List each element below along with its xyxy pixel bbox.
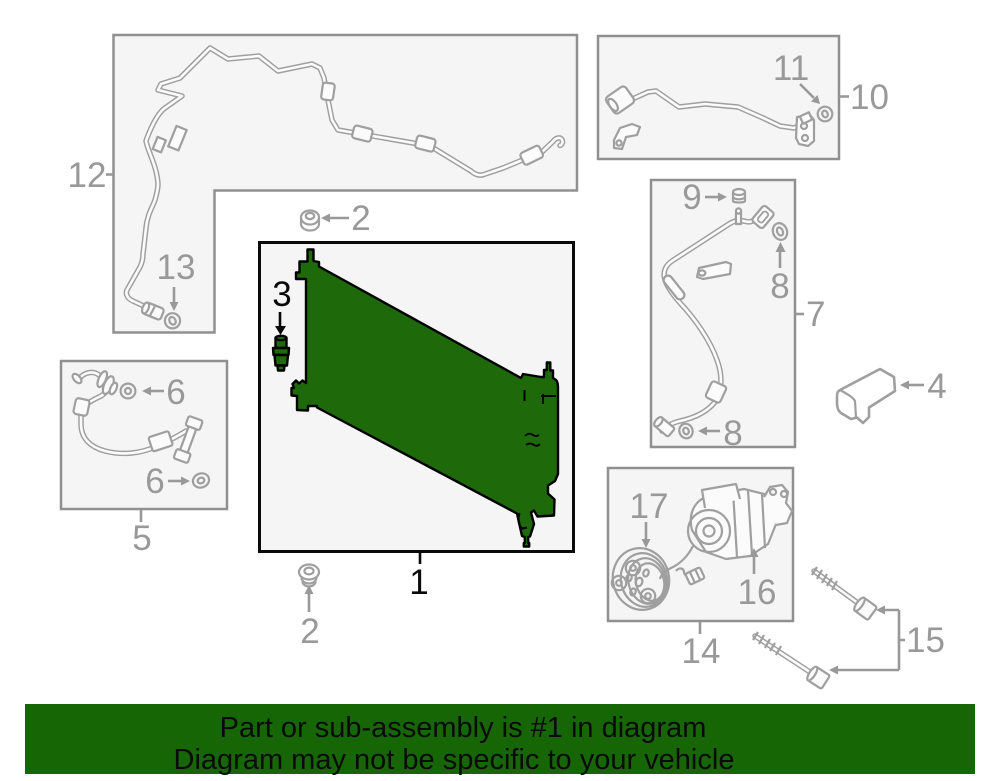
svg-text:9: 9: [682, 178, 701, 217]
svg-text:Part or sub-assembly is #1 in: Part or sub-assembly is #1 in diagram: [220, 712, 707, 744]
svg-text:3: 3: [272, 275, 291, 314]
svg-text:17: 17: [630, 487, 669, 526]
svg-text:4: 4: [927, 367, 946, 406]
svg-text:6: 6: [166, 373, 185, 412]
svg-text:Diagram may not be specific to: Diagram may not be specific to your vehi…: [174, 744, 735, 776]
svg-text:2: 2: [351, 199, 370, 238]
svg-text:1: 1: [409, 563, 428, 602]
svg-text:8: 8: [723, 414, 742, 453]
svg-text:10: 10: [850, 78, 889, 117]
svg-text:5: 5: [132, 519, 151, 558]
svg-text:2: 2: [300, 612, 319, 651]
svg-text:12: 12: [68, 156, 107, 195]
svg-text:6: 6: [145, 462, 164, 501]
svg-text:13: 13: [157, 248, 196, 287]
svg-text:11: 11: [773, 49, 809, 88]
svg-text:8: 8: [770, 267, 789, 306]
svg-text:16: 16: [738, 573, 777, 612]
svg-text:7: 7: [806, 295, 825, 334]
svg-text:15: 15: [906, 621, 945, 660]
svg-text:14: 14: [682, 632, 721, 671]
